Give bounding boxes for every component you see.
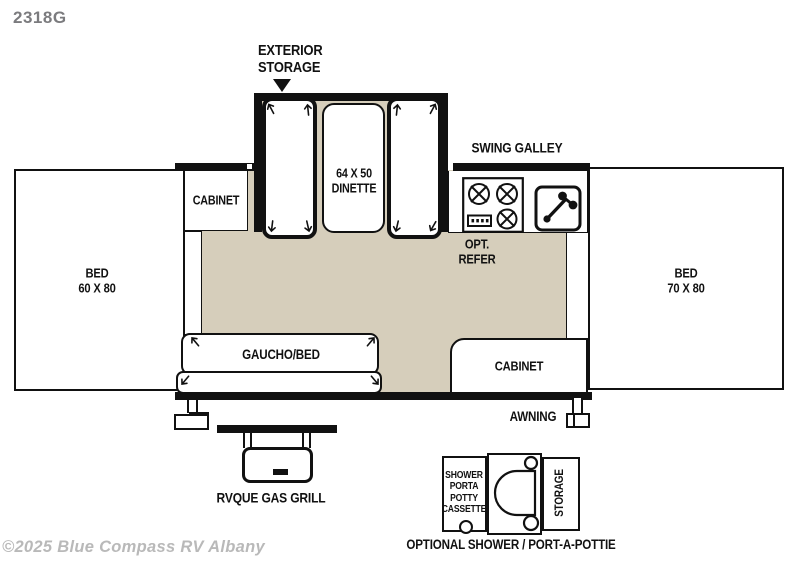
- grill-support-left: [243, 433, 252, 448]
- stove-icon: [462, 177, 524, 233]
- left-counter-strip: [184, 231, 202, 335]
- cushion-arrow-icon: [302, 103, 313, 117]
- model-number: 2318G: [13, 8, 67, 28]
- cushion-arrow-icon: [266, 219, 278, 233]
- grill-handle: [273, 469, 288, 475]
- floorplan-canvas: 2318G BED 60 X 80 BED 70 X 80 EXTERIOR S…: [0, 0, 800, 568]
- cabinet-bottom-right-label: CABINET: [495, 358, 543, 373]
- cabinet-top-left-label: CABINET: [193, 194, 240, 209]
- shower-drain-icon: [459, 520, 473, 534]
- awning-foot-left: [174, 414, 209, 430]
- watermark: ©2025 Blue Compass RV Albany: [2, 538, 265, 557]
- swing-galley-label: SWING GALLEY: [472, 140, 563, 157]
- storage-label: STORAGE: [554, 469, 568, 517]
- wall-top-galley: [453, 163, 590, 171]
- grill-mount-bar: [217, 425, 337, 433]
- optional-shower-text: SHOWER PORTA POTTY CASSETTE: [442, 470, 487, 516]
- awning-arm-right: [572, 398, 583, 414]
- opt-refer-label: OPT. REFER: [458, 237, 495, 268]
- exterior-storage-arrow-icon: [273, 79, 291, 92]
- dinette-bench-right: [387, 97, 442, 239]
- exterior-storage-label: EXTERIOR STORAGE: [258, 43, 323, 77]
- dinette-bench-left: [262, 97, 317, 239]
- popout-wall-left: [254, 93, 262, 232]
- awning-foot-right: [566, 413, 590, 428]
- gaucho-label: GAUCHO/BED: [242, 347, 320, 363]
- bed-right-label: BED 70 X 80: [667, 266, 704, 297]
- awning-foot-right-line: [573, 415, 575, 426]
- sink-icon: [534, 185, 582, 232]
- cushion-arrow-icon: [391, 103, 402, 117]
- grill-body: [242, 447, 313, 483]
- awning-label: AWNING: [510, 409, 557, 425]
- optional-unit-caption: OPTIONAL SHOWER / PORT-A-POTTIE: [406, 537, 615, 553]
- dinette-label: 64 X 50 DINETTE: [332, 166, 377, 196]
- grill-support-right: [302, 433, 311, 448]
- right-counter-strip: [566, 233, 588, 338]
- grill-label: RVQUE GAS GRILL: [217, 490, 326, 507]
- bed-left-label: BED 60 X 80: [78, 266, 115, 297]
- gaucho-seat: [176, 371, 382, 394]
- toilet-icon: [487, 453, 542, 535]
- wall-notch: [246, 163, 253, 170]
